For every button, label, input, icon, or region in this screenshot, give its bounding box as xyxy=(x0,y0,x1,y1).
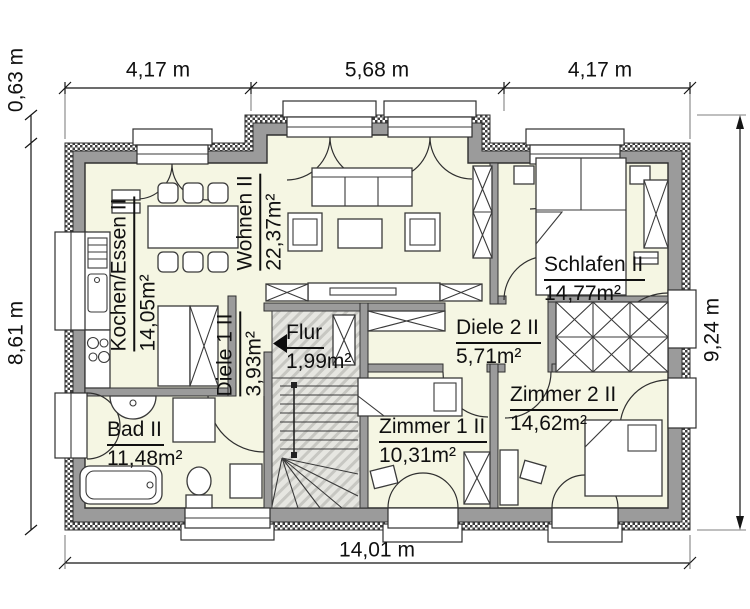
room-name: Diele 2 II xyxy=(456,315,541,344)
room-name: Diele 1 II xyxy=(212,312,241,397)
wall-schlafen-south-stub xyxy=(498,296,506,304)
sofa xyxy=(312,168,412,206)
toilet-bowl xyxy=(187,467,211,495)
dining-chair xyxy=(208,252,228,272)
floor-plan: Kochen/Essen II 14,05m² Wohnen II 22,37m… xyxy=(0,0,750,609)
wall-wohnen-diele2 xyxy=(368,303,445,311)
dim-left: 8,61 m xyxy=(4,301,27,365)
room-area: 14,62m² xyxy=(510,411,618,437)
handrail-post xyxy=(291,382,297,388)
room-label-schlafen: Schlafen II 14,77m² xyxy=(544,252,645,308)
room-label-kochen-essen: Kochen/Essen II 14,05m² xyxy=(106,197,162,352)
washing-machine xyxy=(230,464,262,498)
room-label-wohnen: Wohnen II 22,37m² xyxy=(232,173,288,270)
dim-top-middle: 5,68 m xyxy=(345,58,409,81)
wall-diele2-zimmer1 xyxy=(368,364,443,372)
diele2-closets xyxy=(556,302,668,372)
room-name: Flur xyxy=(286,320,324,349)
room-name: Bad II xyxy=(107,417,164,446)
door-schlafen-east xyxy=(668,290,696,348)
window-sill xyxy=(283,101,376,117)
nightstand xyxy=(514,166,534,184)
window-sill xyxy=(133,129,212,145)
dining-chair xyxy=(183,252,203,272)
room-area: 22,37m² xyxy=(262,173,288,270)
room-label-bad: Bad II 11,48m² xyxy=(107,417,182,473)
dim-top-left: 4,17 m xyxy=(126,58,190,81)
bed xyxy=(358,378,462,416)
wall-flur-north xyxy=(264,303,368,311)
stair-flight-hatch xyxy=(272,378,360,508)
room-area: 14,05m² xyxy=(136,197,162,352)
door-zimmer2-east xyxy=(668,378,696,428)
room-label-diele2: Diele 2 II 5,71m² xyxy=(456,315,541,371)
dim-bottom: 14,01 m xyxy=(339,538,415,561)
window-sill xyxy=(526,129,624,145)
handrail-post xyxy=(291,452,297,458)
room-area: 3,93m² xyxy=(242,312,268,397)
dining-chair xyxy=(183,183,203,203)
window-sill xyxy=(384,101,476,117)
door-zimmer2-south xyxy=(552,508,618,528)
wall-zimmer1-zimmer2 xyxy=(490,364,498,508)
dining-chair xyxy=(208,183,228,203)
toilet-cistern xyxy=(186,495,212,508)
room-label-zimmer1: Zimmer 1 II 10,31m² xyxy=(379,414,487,470)
room-area: 10,31m² xyxy=(379,443,487,469)
tv-lowboard xyxy=(308,283,440,301)
room-label-zimmer2: Zimmer 2 II 14,62m² xyxy=(510,382,618,438)
room-area: 5,71m² xyxy=(456,344,541,370)
door-zimmer1-south xyxy=(388,508,458,528)
room-area: 1,99m² xyxy=(286,349,351,375)
room-label-flur: Flur 1,99m² xyxy=(286,320,351,376)
wall-diele2-closet xyxy=(548,302,556,372)
room-name: Kochen/Essen II xyxy=(106,197,135,352)
room-name: Zimmer 2 II xyxy=(510,382,618,411)
dim-top-right: 4,17 m xyxy=(568,58,632,81)
desk xyxy=(500,450,518,505)
room-area: 11,48m² xyxy=(107,446,182,472)
wall-kitchen-bad xyxy=(85,388,228,396)
room-area: 14,77m² xyxy=(544,281,645,307)
dim-offset-left: 0,63 m xyxy=(4,48,27,112)
kitchen-cabinet xyxy=(158,306,190,386)
room-name: Zimmer 1 II xyxy=(379,414,487,443)
dim-right: 9,24 m xyxy=(700,298,723,362)
room-name: Schlafen II xyxy=(544,252,645,281)
room-name: Wohnen II xyxy=(232,173,261,270)
coffee-table xyxy=(338,219,382,248)
room-label-diele1: Diele 1 II 3,93m² xyxy=(212,312,268,397)
